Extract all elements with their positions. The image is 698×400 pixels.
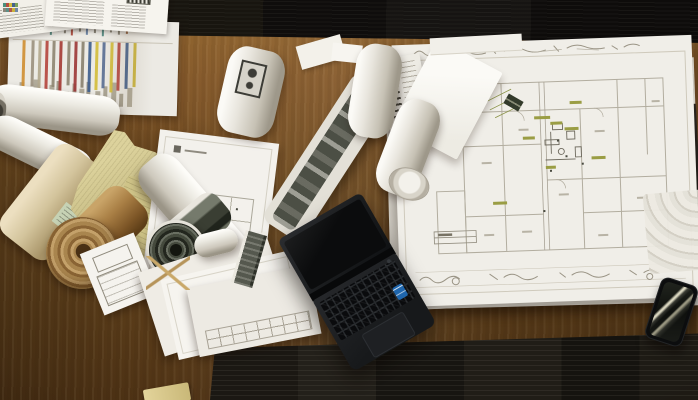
desk-photo [0,0,698,400]
legend-pixel [15,8,18,12]
logo-mark [173,145,181,153]
twine-string [146,256,190,290]
legend-pixel [15,3,18,7]
barcode-grid [126,0,151,5]
fine-print [111,4,146,28]
paper-tip [143,382,191,400]
color-legend-sticker [2,2,20,14]
fine-print [53,0,105,26]
plan-dot [236,208,238,210]
curled-paper-corner [643,190,698,274]
spiral-center [170,244,182,256]
